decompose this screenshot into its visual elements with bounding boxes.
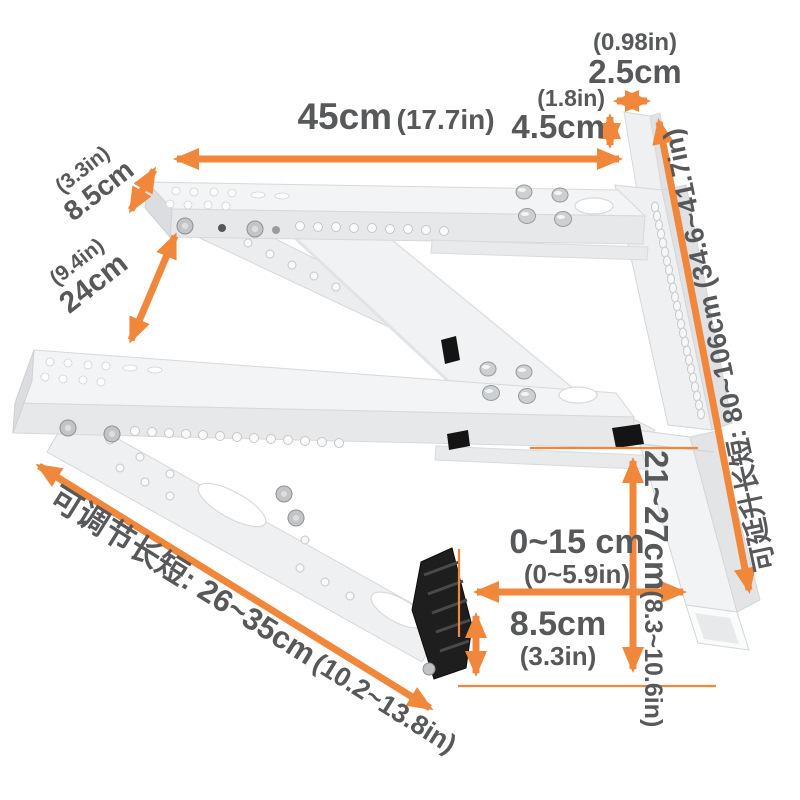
top-width-inch: (0.98in) xyxy=(545,30,725,55)
drop-height-cm: 21~27cm xyxy=(638,450,675,590)
foot-height-cm: 8.5cm xyxy=(458,607,658,643)
product-dimension-diagram: (0.98in) 2.5cm (1.8in) 4.5cm 45cm (17.7i… xyxy=(0,0,800,800)
top-length-cm: 45cm xyxy=(297,96,392,137)
dimension-label-top-length: 45cm (17.7in) xyxy=(226,98,566,137)
foot-height-inch: (3.3in) xyxy=(458,643,658,670)
dimension-label-foot-height: 8.5cm (3.3in) xyxy=(458,607,658,670)
dimension-label-drop-height: 21~27cm(8.3~10.6in) xyxy=(633,450,673,720)
drop-height-inch: (8.3~10.6in) xyxy=(639,590,667,727)
top-length-inch: (17.7in) xyxy=(397,104,495,135)
dimension-label-top-width: (0.98in) 2.5cm xyxy=(545,30,725,90)
